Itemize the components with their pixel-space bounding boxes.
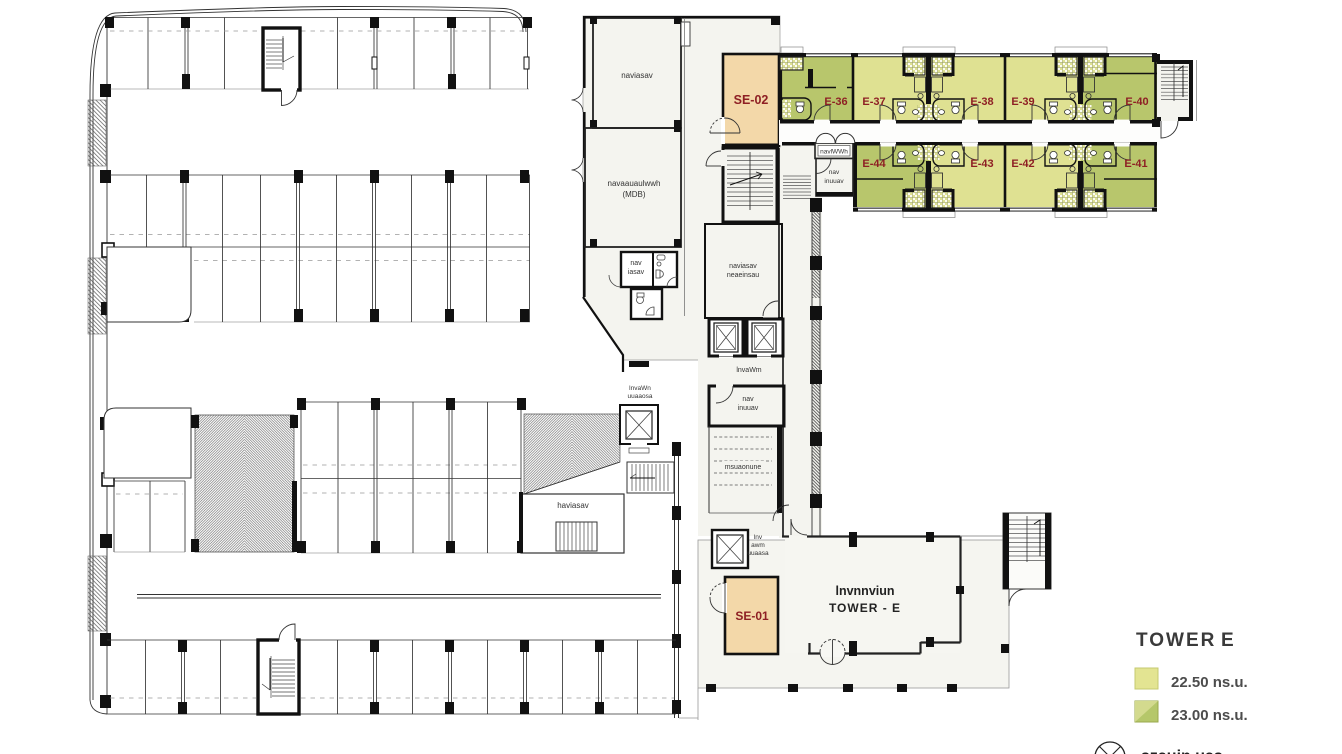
svg-text:22.50 ns.u.: 22.50 ns.u. <box>1171 674 1248 691</box>
svg-text:neaeinsau: neaeinsau <box>727 272 759 279</box>
svg-text:szauin uas: szauin uas <box>1141 748 1223 754</box>
svg-text:uuaasa: uuaasa <box>747 550 769 557</box>
svg-text:lnv: lnv <box>754 534 763 541</box>
svg-text:E-37: E-37 <box>862 96 885 108</box>
svg-text:navlWWh: navlWWh <box>820 149 848 156</box>
svg-text:uuaaosa: uuaaosa <box>628 393 653 400</box>
svg-text:E-40: E-40 <box>1125 96 1148 108</box>
svg-text:navaauaulwwh: navaauaulwwh <box>608 179 661 188</box>
svg-text:naviasav: naviasav <box>621 71 653 80</box>
svg-text:haviasav: haviasav <box>557 501 589 510</box>
svg-text:msuaonune: msuaonune <box>725 464 762 471</box>
svg-text:E-39: E-39 <box>1011 96 1034 108</box>
svg-text:E-41: E-41 <box>1124 158 1147 170</box>
svg-text:SE-01: SE-01 <box>735 609 769 623</box>
svg-text:E-44: E-44 <box>862 158 886 170</box>
svg-text:nav: nav <box>630 260 642 267</box>
svg-text:E-42: E-42 <box>1011 158 1034 170</box>
svg-text:23.00 ns.u.: 23.00 ns.u. <box>1171 707 1248 724</box>
svg-text:E-43: E-43 <box>970 158 993 170</box>
svg-text:E: E <box>1221 630 1234 651</box>
svg-text:inuuav: inuuav <box>738 405 759 412</box>
svg-text:lnvaWn: lnvaWn <box>629 385 651 392</box>
svg-text:lnvnnviun: lnvnnviun <box>835 584 894 598</box>
svg-text:SE-02: SE-02 <box>734 93 769 107</box>
svg-text:nav: nav <box>742 396 754 403</box>
svg-text:awm: awm <box>751 542 765 549</box>
svg-text:iasav: iasav <box>628 269 645 276</box>
svg-text:naviasav: naviasav <box>729 263 757 270</box>
svg-text:E-38: E-38 <box>970 96 993 108</box>
svg-text:nav: nav <box>829 169 840 176</box>
svg-text:inuuav: inuuav <box>824 178 844 185</box>
svg-text:TOWER - E: TOWER - E <box>829 601 901 615</box>
svg-text:(MDB): (MDB) <box>622 190 645 199</box>
svg-text:TOWER: TOWER <box>1136 630 1216 651</box>
svg-text:lnvaWm: lnvaWm <box>736 367 761 374</box>
svg-text:E-36: E-36 <box>824 96 847 108</box>
